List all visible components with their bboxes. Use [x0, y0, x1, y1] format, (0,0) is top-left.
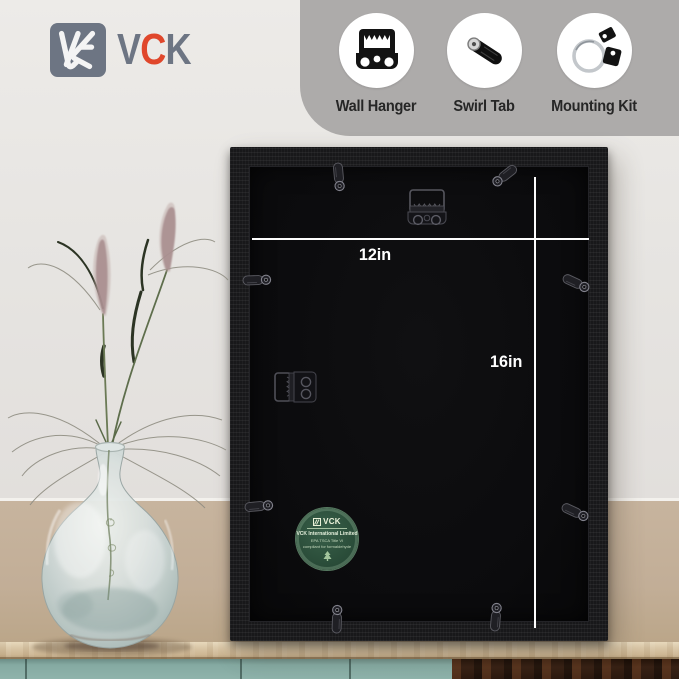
swirl-tab-photo — [447, 13, 522, 88]
wall-hanger-icon — [354, 27, 400, 75]
sticker-divider — [307, 528, 347, 529]
vase-with-dried-grass — [0, 180, 235, 665]
sticker-compliance-line: compliant for formaldehyde — [303, 544, 351, 549]
feature-label: Mounting Kit — [538, 98, 651, 116]
tree-icon — [323, 551, 332, 561]
swirl-tab — [245, 500, 273, 512]
cabinet-rustic-wood-panel — [452, 659, 679, 679]
cabinet-door-seam — [240, 659, 242, 679]
swirl-tab — [243, 275, 271, 285]
frame-hardware — [230, 147, 608, 641]
cabinet-door-seam — [349, 659, 351, 679]
glass-vase — [42, 443, 178, 649]
swirl-tab — [333, 163, 345, 191]
compliance-sticker: VCK VCK International Limited EPA TSCA T… — [296, 508, 358, 570]
side-sawtooth-hanger — [275, 372, 316, 402]
width-dimension-line — [252, 238, 589, 240]
height-dimension-line — [534, 177, 536, 628]
wall-hanger-photo — [339, 13, 414, 88]
swirl-tab — [562, 273, 591, 293]
feature-label: Wall Hanger — [320, 98, 433, 116]
brand-letter: K — [165, 24, 190, 76]
height-dimension-label: 16in — [460, 352, 523, 372]
brand-letter-accent: C — [140, 24, 165, 76]
sticker-brand-text: VCK — [323, 517, 341, 526]
vck-monogram-icon — [49, 22, 107, 78]
dried-grass-plumes — [93, 203, 176, 316]
product-photo-stage: V C K Wall Hanger — [0, 0, 679, 679]
swirl-tab-icon — [460, 26, 510, 76]
feature-label: Swirl Tab — [428, 98, 541, 116]
brand-letter: V — [117, 24, 140, 76]
feature-banner: Wall Hanger Swirl Tab — [300, 0, 679, 136]
swirl-tab — [332, 605, 342, 633]
sticker-brand-row: VCK — [313, 517, 341, 526]
sticker-logo-icon — [313, 518, 321, 526]
swirl-tab — [490, 603, 502, 631]
swirl-tab — [561, 502, 590, 522]
sticker-compliance-line: EPA TSCA Title VI — [311, 538, 343, 543]
brand-logo: V C K — [49, 22, 207, 78]
mounting-kit-icon — [568, 26, 622, 76]
width-dimension-label: 12in — [342, 245, 409, 265]
swirl-tab — [491, 164, 518, 188]
sawtooth-hanger — [408, 190, 446, 224]
brand-wordmark: V C K — [117, 24, 191, 76]
frame-back: 12in 16in VCK VCK International Limited … — [230, 147, 608, 641]
sticker-company: VCK International Limited — [296, 531, 357, 537]
mounting-kit-photo — [557, 13, 632, 88]
